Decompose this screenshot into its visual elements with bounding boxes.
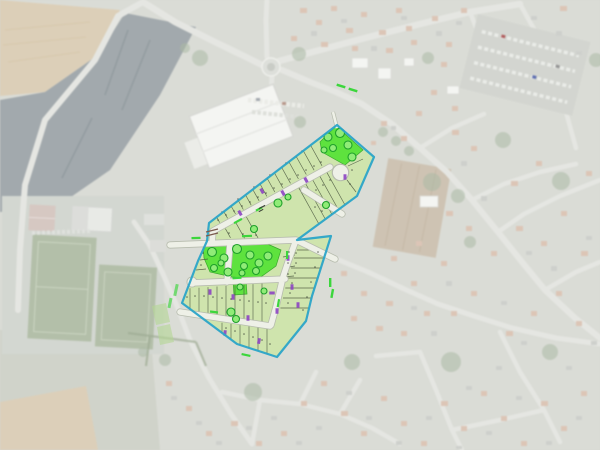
- tree-icon: [224, 268, 232, 276]
- tree-icon: [251, 226, 258, 233]
- tree-icon: [227, 308, 235, 316]
- tree-icon: [261, 288, 267, 294]
- tree-icon: [233, 316, 240, 323]
- tree-icon: [218, 260, 224, 266]
- tree-icon: [255, 259, 263, 267]
- aerial-plan-map: [0, 0, 600, 450]
- tree-icon: [239, 270, 245, 276]
- tree-icon: [264, 252, 272, 260]
- tree-icon: [246, 251, 254, 259]
- tree-icon: [348, 153, 356, 161]
- tree-icon: [253, 268, 260, 275]
- tree-icon: [274, 199, 282, 207]
- map-viewport: [0, 0, 600, 450]
- tree-icon: [208, 248, 217, 257]
- tree-icon: [330, 145, 337, 152]
- tree-icon: [233, 245, 242, 254]
- tree-icon: [321, 147, 327, 153]
- tree-icon: [211, 265, 218, 272]
- tree-icon: [237, 284, 243, 290]
- tree-icon: [344, 141, 352, 149]
- tree-icon: [241, 263, 248, 270]
- tree-icon: [323, 202, 330, 209]
- tree-icon: [285, 194, 291, 200]
